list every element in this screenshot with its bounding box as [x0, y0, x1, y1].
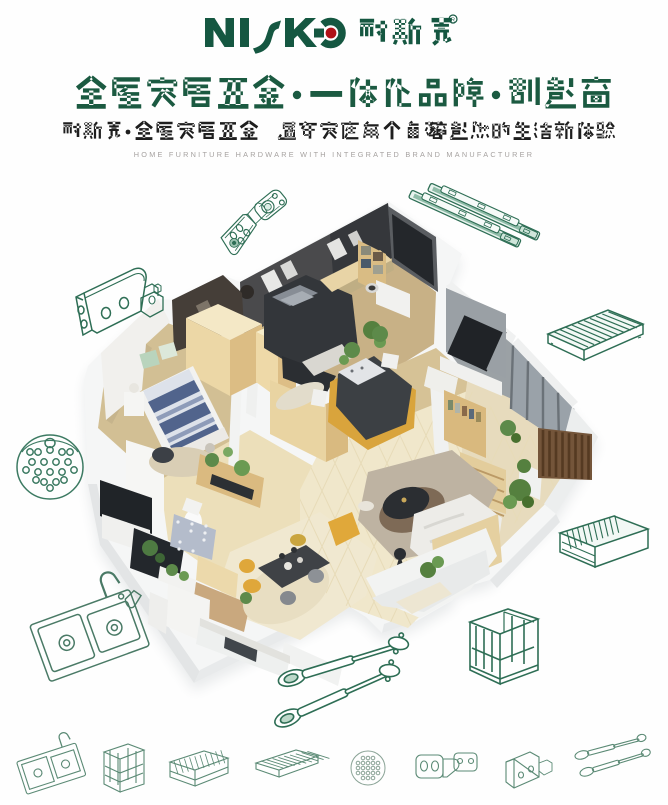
svg-text:R: R [451, 18, 455, 24]
svg-text:HOME FURNITURE HARDWARE WITH I: HOME FURNITURE HARDWARE WITH INTEGRATED … [134, 150, 534, 159]
